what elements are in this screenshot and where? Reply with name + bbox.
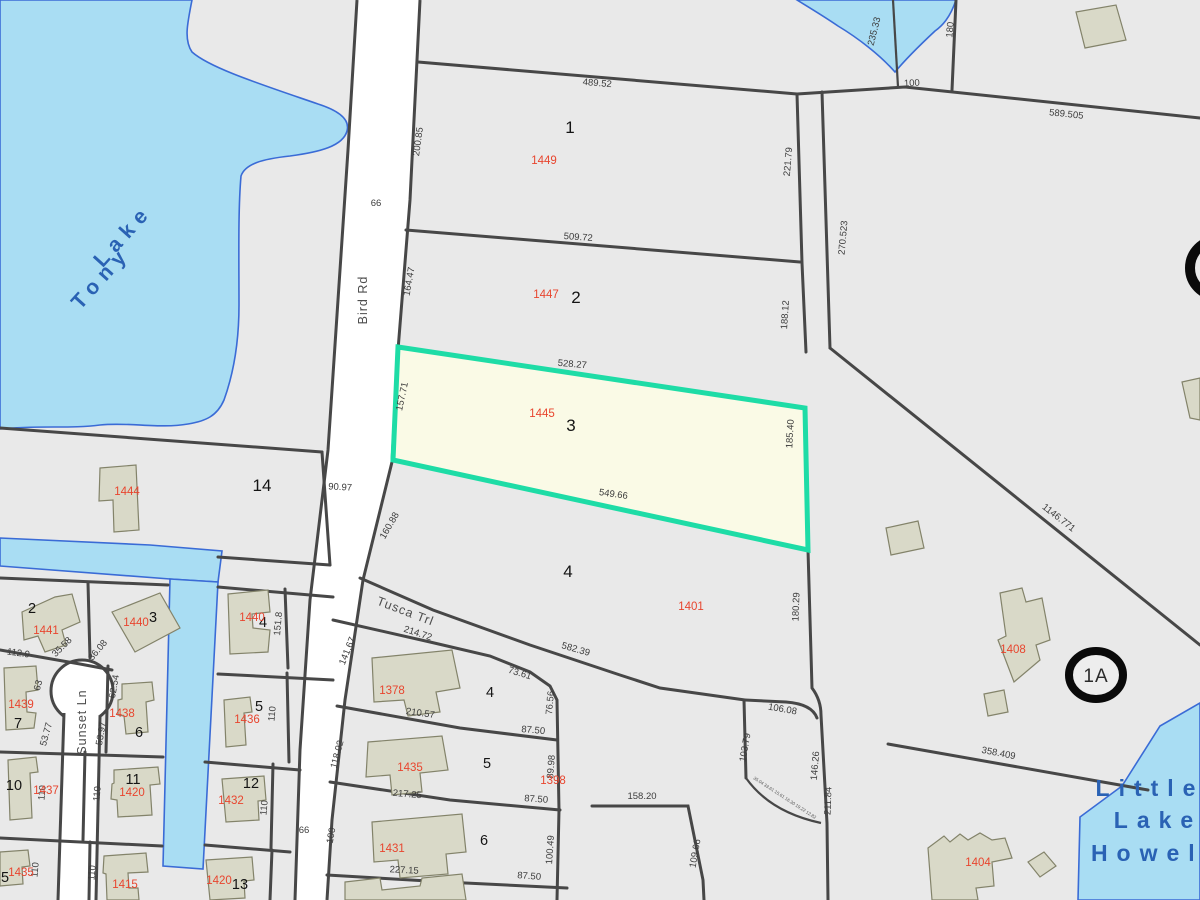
- parcel-id-label: 1437: [33, 785, 59, 797]
- dimension-label: 180: [944, 21, 956, 38]
- dimension-label: 185.40: [784, 419, 797, 449]
- parcel-id-label: 1438: [109, 708, 135, 720]
- road-label: Bird Rd: [356, 276, 370, 325]
- parcel-id-label: 1420: [206, 875, 232, 887]
- lot-number: 10: [6, 778, 22, 794]
- dimension-label: 76.56: [544, 690, 557, 715]
- dimension-label: 100.49: [544, 835, 557, 865]
- dimension-label: 188.12: [779, 300, 792, 330]
- water-label: Little: [1096, 775, 1200, 801]
- dimension-label: 66: [299, 825, 310, 836]
- dimension-label: 110: [258, 800, 270, 816]
- parcel-id-label: 1440: [239, 612, 265, 624]
- parcel-id-label: 1435: [8, 867, 34, 879]
- dimension-label: 87.50: [521, 724, 546, 737]
- lot-number: 5: [255, 699, 263, 715]
- water-label: Howell: [1091, 840, 1200, 866]
- parcel-id-label: 1445: [529, 408, 555, 420]
- parcel-id-label: 1436: [234, 714, 260, 726]
- lot-number: 3: [149, 610, 157, 626]
- lot-number: 14: [253, 476, 272, 495]
- parcel-id-label: 1408: [1000, 644, 1026, 656]
- lot-number: 13: [232, 877, 248, 893]
- lot-number: 4: [486, 685, 494, 701]
- parcel-id-label: 1435: [397, 762, 423, 774]
- dimension-label: 100: [904, 78, 920, 90]
- dimension-label: 110: [266, 706, 278, 722]
- dimension-label: 227.15: [389, 864, 419, 877]
- water-label: Lake: [1114, 807, 1200, 833]
- lot-number: 3: [566, 416, 575, 435]
- parcel-id-label: 1449: [531, 155, 557, 167]
- dimension-label: 151.8: [272, 611, 285, 636]
- lot-number: 6: [480, 833, 488, 849]
- parcel-id-label: 1440: [123, 617, 149, 629]
- lot-number: 11: [125, 772, 140, 788]
- parcel-id-label: 1447: [533, 289, 559, 301]
- parcel-map-canvas: LakeTonyLittleLakeHowellBird RdSunset Ln…: [0, 0, 1200, 900]
- dimension-label: 158.20: [627, 791, 656, 802]
- parcel-id-label: 1420: [119, 787, 145, 799]
- parcel-id-label: 1415: [112, 879, 138, 891]
- parcel-id-label: 1398: [540, 775, 566, 787]
- road-label: Sunset Ln: [75, 689, 89, 754]
- lot-number: 2: [28, 601, 36, 617]
- parcel-id-label: 1444: [114, 486, 140, 498]
- parcel-id-label: 1401: [678, 601, 704, 613]
- parcel-id-label: 1378: [379, 685, 405, 697]
- parcel-id-label: 1439: [8, 699, 34, 711]
- dimension-label: 87.50: [517, 870, 541, 883]
- lot-number: 4: [563, 562, 572, 581]
- parcel-id-label: 1432: [218, 795, 244, 807]
- lot-number: 2: [571, 288, 580, 307]
- parcel-id-label: 1404: [965, 857, 991, 869]
- dimension-label: 90.97: [328, 481, 352, 493]
- dimension-label: 180.29: [790, 592, 802, 621]
- parcel-id-label: 1441: [33, 625, 59, 637]
- dimension-label: 509.72: [563, 231, 593, 244]
- dimension-label: 110: [86, 865, 98, 881]
- lot-number: 1: [565, 118, 574, 137]
- dimension-label: 66: [371, 198, 382, 209]
- parcel-id-label: 1431: [379, 843, 405, 855]
- lot-number: 6: [135, 725, 143, 741]
- lot-number: 5: [483, 756, 491, 772]
- lot-number: 7: [14, 716, 22, 732]
- dimension-label: 87.50: [524, 793, 548, 806]
- dimension-label: 211.84: [823, 787, 835, 816]
- marker-label: 1A: [1083, 666, 1108, 687]
- parcel-map-viewport[interactable]: LakeTonyLittleLakeHowellBird RdSunset Ln…: [0, 0, 1200, 900]
- dimension-label: 110: [91, 786, 103, 802]
- lot-number: 12: [243, 776, 259, 792]
